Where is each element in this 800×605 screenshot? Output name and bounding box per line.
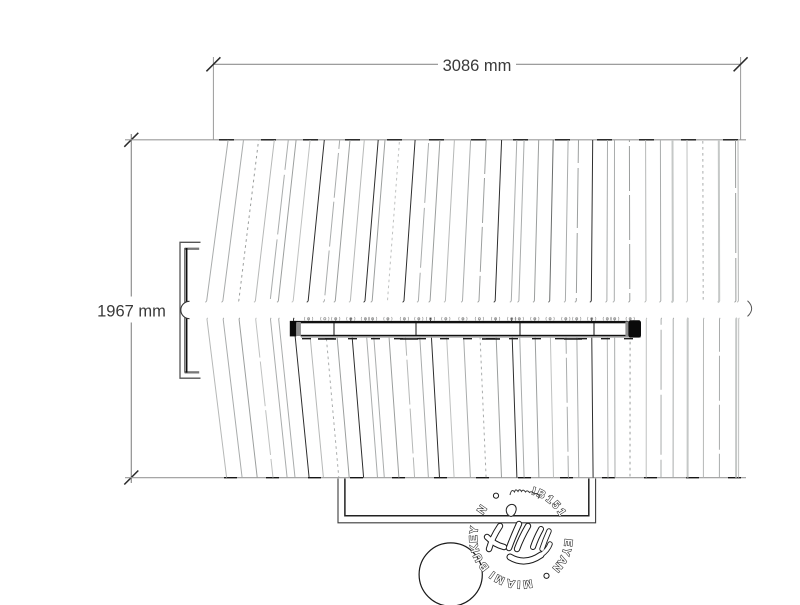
svg-text:M: M: [522, 577, 533, 590]
svg-text:1967 mm: 1967 mm: [97, 303, 166, 321]
svg-text:3086 mm: 3086 mm: [443, 57, 512, 75]
svg-text:E: E: [468, 535, 480, 543]
svg-text:I: I: [517, 578, 521, 590]
svg-text:E: E: [561, 538, 574, 547]
